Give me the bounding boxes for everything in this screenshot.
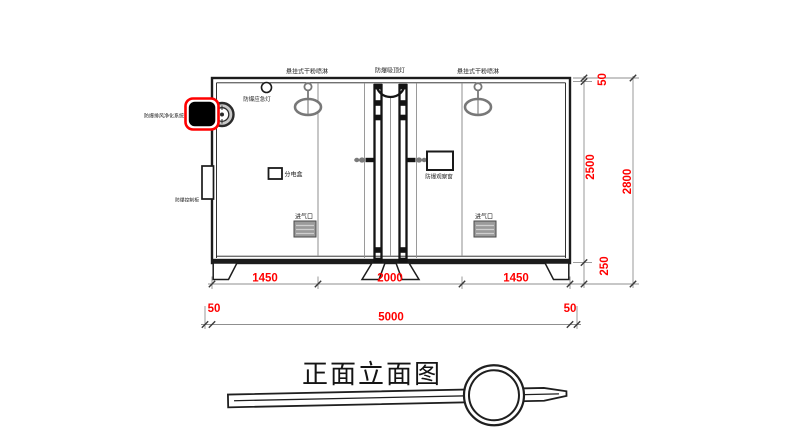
dim-base-height: 250 — [599, 256, 611, 275]
air-vent-right — [474, 221, 496, 237]
air-vent-left — [294, 221, 316, 237]
elevation-drawing: 悬挂式干粉喷淋 防爆吸顶灯 悬挂式干粉喷淋 防爆应急灯 防爆排风净化系统 防爆控… — [0, 0, 800, 445]
purifier-unit — [186, 99, 219, 130]
label-air-inlet-right: 进气口 — [475, 213, 493, 221]
title-ring-inner — [468, 370, 519, 421]
elevation-drawing-page: 悬挂式干粉喷淋 防爆吸顶灯 悬挂式干粉喷淋 防爆应急灯 防爆排风净化系统 防爆控… — [0, 0, 800, 445]
dim-body-height: 2500 — [585, 154, 597, 180]
label-air-inlet-left: 进气口 — [295, 213, 313, 221]
dim-top-offset: 50 — [597, 73, 609, 86]
emergency-lamp-icon — [262, 83, 272, 93]
base-rail — [213, 259, 569, 263]
label-exhaust-purifier: 防爆排风净化系统 — [144, 113, 184, 120]
dimension-lines — [201, 75, 639, 329]
dim-bay-left: 1450 — [252, 273, 278, 285]
label-sprinkler-left: 悬挂式干粉喷淋 — [286, 68, 328, 76]
sprinkler-right-icon — [465, 83, 491, 115]
sprinkler-left-icon — [295, 83, 321, 115]
power-box — [269, 168, 283, 179]
dim-margin-right: 50 — [564, 303, 577, 315]
dim-bay-right: 1450 — [503, 273, 529, 285]
drawing-title: 正面立面图 — [302, 360, 442, 389]
dim-margin-left: 50 — [208, 303, 221, 315]
label-ceiling-lamp: 防爆吸顶灯 — [375, 67, 405, 75]
label-power-box: 分电盒 — [285, 171, 303, 179]
observation-window — [427, 152, 453, 171]
foot-right — [545, 263, 569, 280]
container-box — [212, 78, 570, 263]
label-control-cabinet: 防爆控制柜 — [175, 197, 199, 204]
label-sprinkler-right: 悬挂式干粉喷淋 — [457, 68, 499, 76]
dim-total-height: 2800 — [622, 169, 634, 195]
label-emergency-lamp: 防爆应急灯 — [243, 95, 271, 103]
dim-bay-center: 2000 — [377, 273, 403, 285]
purifier-body — [189, 102, 216, 127]
foot-left — [213, 263, 237, 280]
control-cabinet — [202, 166, 214, 199]
label-observation-window: 防爆观察窗 — [425, 173, 453, 181]
dim-total-width: 5000 — [378, 312, 404, 324]
